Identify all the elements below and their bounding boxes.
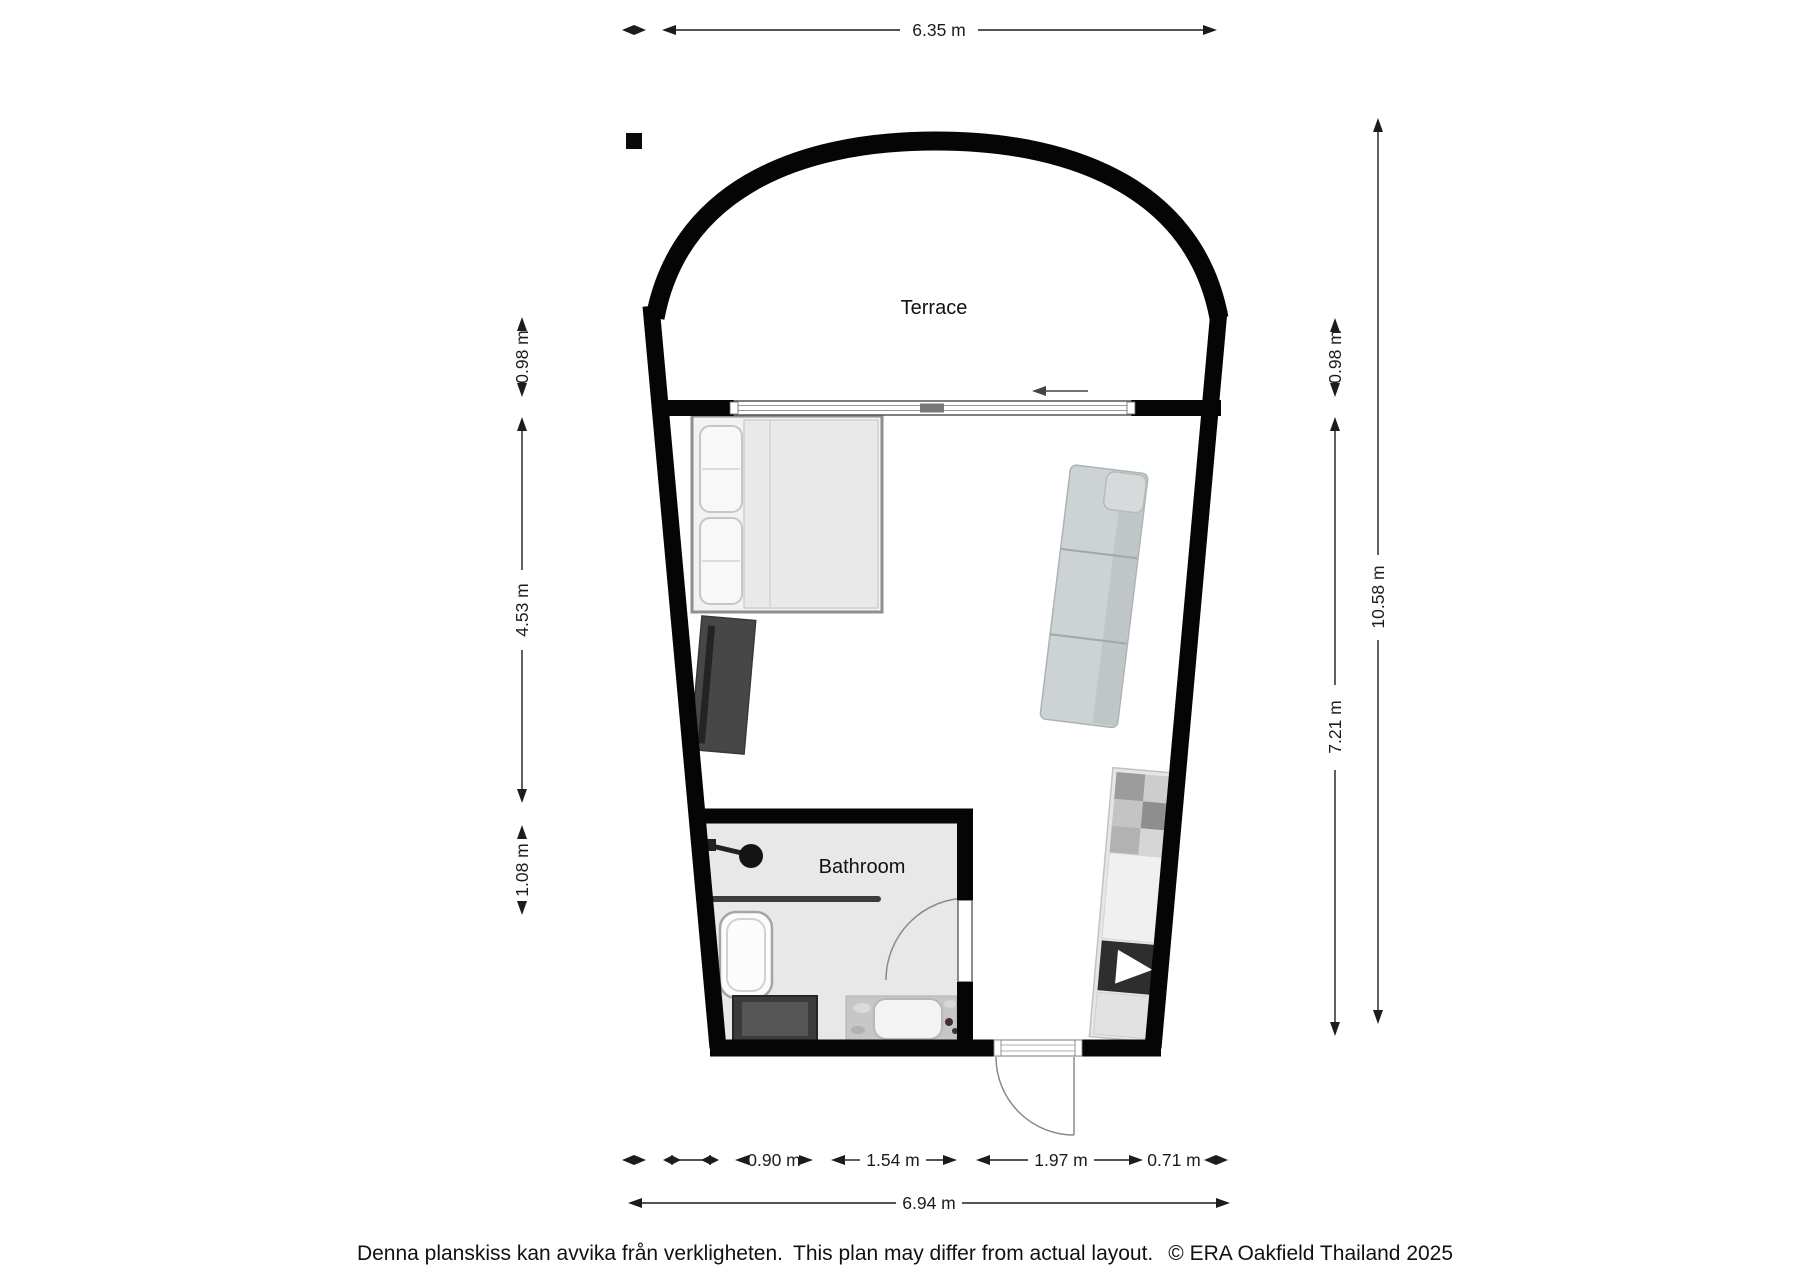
dim-bottom-total-label: 6.94 m: [902, 1193, 956, 1213]
dim-top-width-label: 6.35 m: [912, 20, 966, 40]
dim-right-1-label: 0.98 m: [1325, 330, 1345, 384]
entrance-door-arc: [996, 1057, 1074, 1135]
dim-left-3-label: 1.08 m: [512, 843, 532, 897]
entrance-door: [996, 1057, 1074, 1135]
sink: [874, 999, 942, 1039]
terrace-label: Terrace: [901, 297, 968, 319]
dim-bottom-1-label: 0.90 m: [747, 1150, 801, 1170]
footer-disclaimer: Denna planskiss kan avvika från verkligh…: [0, 1242, 1810, 1266]
dim-total-height-label: 10.58 m: [1368, 565, 1388, 628]
bed: [692, 416, 882, 612]
disclaimer-english: This plan may differ from actual layout.: [793, 1242, 1153, 1265]
bathroom-door-leaf: [958, 900, 972, 982]
dim-left-2-label: 4.53 m: [512, 583, 532, 637]
floorplan-canvas: Terrace Bathroom: [0, 0, 1810, 1280]
bathroom-label: Bathroom: [819, 856, 906, 878]
copyright-text: © ERA Oakfield Thailand 2025: [1168, 1242, 1453, 1265]
sofa: [1040, 464, 1149, 728]
sink-counter: [846, 996, 958, 1042]
entrance-threshold: [994, 1040, 1082, 1056]
dim-bottom-2-label: 1.54 m: [866, 1150, 920, 1170]
wall-arch: [655, 141, 1219, 318]
wall-right: [1153, 310, 1219, 1048]
dim-bottom-4-label: 0.71 m: [1147, 1150, 1201, 1170]
marker-square: [626, 133, 642, 149]
dim-right-2-label: 7.21 m: [1325, 700, 1345, 754]
tv-cabinet: [690, 616, 755, 754]
dimension-bottom-row: [622, 1155, 1228, 1165]
sliding-door: [730, 401, 1135, 415]
disclaimer-swedish: Denna planskiss kan avvika från verkligh…: [357, 1242, 783, 1265]
washing-machine: [733, 996, 817, 1042]
toilet: [720, 912, 772, 998]
faucet-icon: [945, 1018, 953, 1026]
dim-left-1-label: 0.98 m: [512, 330, 532, 384]
duvet: [744, 420, 878, 608]
sliding-door-arrow: [1032, 386, 1088, 396]
dim-bottom-3-label: 1.97 m: [1034, 1150, 1088, 1170]
floorplan-drawing: Terrace Bathroom: [0, 0, 1810, 1280]
